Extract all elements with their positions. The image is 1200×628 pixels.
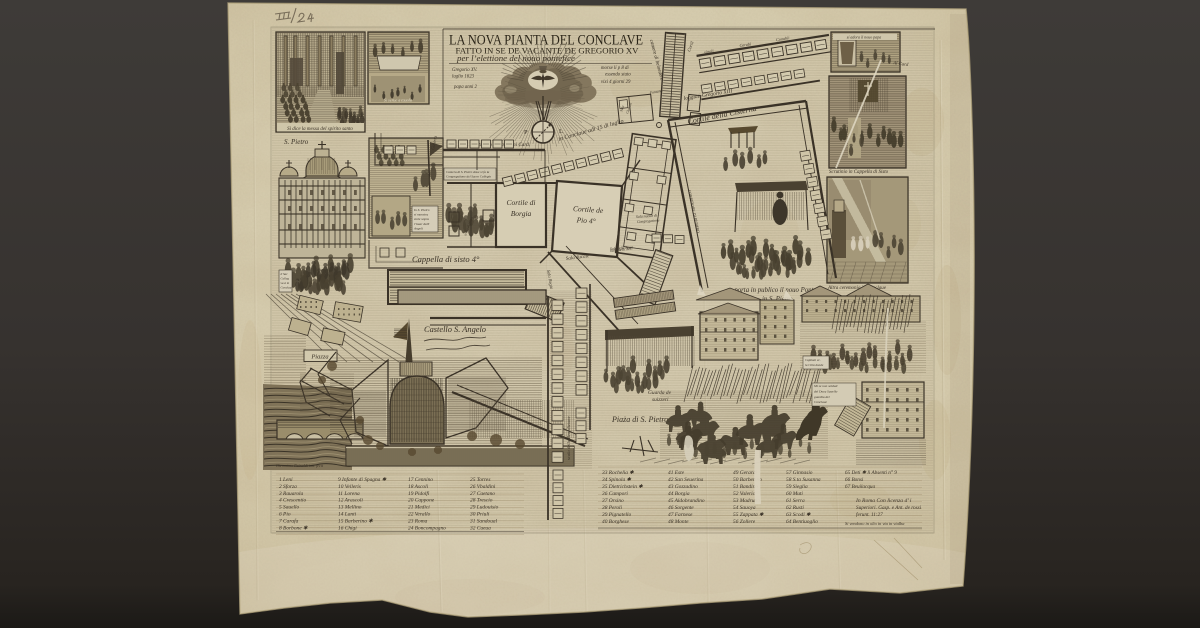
- svg-text:L: L: [559, 128, 563, 135]
- svg-text:9 Infante di Spagna ✱: 9 Infante di Spagna ✱: [338, 476, 387, 483]
- svg-text:37 Orsino: 37 Orsino: [601, 498, 624, 504]
- svg-text:46 Sorgente: 46 Sorgente: [668, 505, 694, 511]
- svg-text:Conclau: Conclau: [281, 286, 292, 290]
- svg-text:64 Bentiuoglio: 64 Bentiuoglio: [786, 519, 818, 525]
- svg-text:63 Scodi ✱: 63 Scodi ✱: [786, 512, 811, 518]
- svg-text:47 Farnese: 47 Farnese: [668, 512, 693, 518]
- svg-text:Pio 4°: Pio 4°: [575, 215, 596, 225]
- svg-text:28 Trescio: 28 Trescio: [470, 498, 493, 504]
- svg-text:Gieronimo Rainaldi inu. fecit: Gieronimo Rainaldi inu. fecit: [276, 463, 324, 468]
- svg-text:Si dice la messa del spirito s: Si dice la messa del spirito santo: [287, 127, 353, 132]
- svg-text:11 Lorena: 11 Lorena: [338, 491, 360, 497]
- svg-text:16 Chigi: 16 Chigi: [338, 525, 357, 531]
- svg-text:23 Roma: 23 Roma: [408, 518, 428, 524]
- svg-text:45 Aldobrandino: 45 Aldobrandino: [668, 498, 705, 504]
- svg-text:60 Muti: 60 Muti: [786, 491, 803, 497]
- svg-text:67 Beuilacqua: 67 Beuilacqua: [845, 484, 876, 490]
- svg-text:vixi 4 giorni 29: vixi 4 giorni 29: [601, 80, 631, 85]
- svg-text:22 Verallo: 22 Verallo: [408, 512, 431, 518]
- svg-text:Piazza: Piazza: [310, 354, 328, 361]
- svg-text:essendo stato: essendo stato: [605, 73, 631, 78]
- svg-text:41 Este: 41 Este: [668, 470, 685, 476]
- svg-text:Conclaue: Conclaue: [814, 400, 827, 404]
- svg-text:38 Peroli: 38 Peroli: [601, 505, 623, 511]
- svg-text:12 Arascoli: 12 Arascoli: [338, 498, 363, 504]
- svg-text:33 Rochelia ✱: 33 Rochelia ✱: [601, 470, 634, 476]
- svg-text:57 Ginnasio: 57 Ginnasio: [786, 470, 813, 476]
- svg-text:27 Caetano: 27 Caetano: [470, 491, 495, 497]
- svg-text:36 Campori: 36 Campori: [601, 491, 628, 497]
- svg-text:55 Zappata ✱: 55 Zappata ✱: [733, 512, 764, 518]
- svg-text:papa anni 2: papa anni 2: [453, 85, 478, 90]
- svg-text:3 Rauarola: 3 Rauarola: [278, 491, 304, 497]
- svg-text:61 Serra: 61 Serra: [786, 498, 805, 504]
- svg-text:guardia del: guardia del: [814, 395, 830, 399]
- svg-text:si monstra: si monstra: [414, 213, 429, 217]
- svg-text:del Duca Sauello: del Duca Sauello: [814, 389, 838, 393]
- svg-text:i’baar delli: i’baar delli: [414, 222, 429, 226]
- svg-text:Gregorio XV.: Gregorio XV.: [452, 68, 478, 73]
- svg-text:Congregatione del Sacro Colleg: Congregatione del Sacro Collegio: [446, 175, 491, 179]
- svg-text:In S. Pietro: In S. Pietro: [413, 208, 430, 212]
- svg-text:Cappella di sisto 4°: Cappella di sisto 4°: [412, 254, 480, 264]
- svg-text:8 Borbone ✱: 8 Borbone ✱: [279, 525, 308, 531]
- svg-text:30 Priuli: 30 Priuli: [469, 512, 490, 518]
- svg-text:32 Cueua: 32 Cueua: [469, 525, 491, 531]
- svg-text:Capitani ec.: Capitani ec.: [805, 358, 821, 362]
- svg-text:59 Sieglia: 59 Sieglia: [786, 484, 808, 490]
- svg-text:suizzeri: suizzeri: [652, 397, 669, 403]
- svg-text:5 Sauello: 5 Sauello: [279, 505, 300, 511]
- svg-text:va à in: va à in: [281, 281, 290, 285]
- svg-text:P: P: [524, 129, 528, 136]
- svg-text:ferunt. 11:27: ferunt. 11:27: [856, 511, 883, 518]
- svg-text:morse li p 8 di: morse li p 8 di: [601, 66, 629, 71]
- svg-text:29 Ludouisio: 29 Ludouisio: [470, 505, 499, 511]
- svg-text:34 Spinola ✱: 34 Spinola ✱: [601, 477, 632, 483]
- svg-text:6 Pio: 6 Pio: [279, 512, 291, 518]
- svg-text:1 Leni: 1 Leni: [279, 477, 293, 483]
- svg-text:10 Velleris: 10 Velleris: [338, 484, 361, 490]
- svg-text:il Sac: il Sac: [281, 272, 289, 276]
- svg-text:18 Ascoli: 18 Ascoli: [408, 484, 429, 490]
- svg-text:21 Medici: 21 Medici: [408, 505, 430, 511]
- svg-text:Scrutinio in Cappella di Sisto: Scrutinio in Cappella di Sisto: [829, 170, 889, 175]
- svg-text:54 Sauoya: 54 Sauoya: [733, 505, 756, 511]
- svg-text:Si serue a tauola: Si serue a tauola: [384, 98, 412, 103]
- svg-text:35 Dietrichstein ✱: 35 Dietrichstein ✱: [601, 484, 643, 490]
- svg-text:14 Lanti: 14 Lanti: [338, 512, 357, 518]
- svg-text:Castello S. Angelo: Castello S. Angelo: [424, 325, 486, 334]
- svg-text:66 Bonsi: 66 Bonsi: [845, 477, 864, 483]
- svg-text:20 Cappone: 20 Cappone: [408, 498, 435, 504]
- svg-text:52 Valerio: 52 Valerio: [733, 491, 756, 497]
- svg-text:4 Crescentio: 4 Crescentio: [279, 498, 307, 504]
- svg-text:la Città donde: la Città donde: [805, 363, 824, 367]
- svg-text:Camera di S. Pietro doue si fa: Camera di S. Pietro doue si fa la: [446, 170, 490, 174]
- svg-text:13 Mellino: 13 Mellino: [338, 505, 362, 511]
- svg-text:43 Gozzadino: 43 Gozzadino: [668, 484, 698, 490]
- svg-text:Superiori. Gasp. e Ant. de ros: Superiori. Gasp. e Ant. de rossi: [856, 505, 922, 511]
- svg-text:62 Rusti: 62 Rusti: [786, 505, 804, 511]
- svg-text:26 Vbaldini: 26 Vbaldini: [470, 484, 496, 490]
- svg-text:2 Sforza: 2 Sforza: [279, 483, 297, 490]
- svg-text:40 Borghese: 40 Borghese: [602, 519, 630, 525]
- svg-text:Cortile di: Cortile di: [507, 198, 536, 207]
- svg-text:S. Pietro: S. Pietro: [284, 138, 309, 146]
- svg-text:scala della Benedizione: scala della Benedizione: [566, 416, 571, 460]
- svg-text:Borgia: Borgia: [511, 209, 532, 218]
- svg-text:Guarda de: Guarda de: [648, 390, 672, 396]
- svg-text:Mi se non soldati: Mi se non soldati: [813, 384, 838, 388]
- svg-text:39 Pignatello: 39 Pignatello: [601, 512, 632, 518]
- svg-text:si adora il nouo papa: si adora il nouo papa: [847, 35, 881, 40]
- svg-text:65 Deti ✱ li Absenti n° 9: 65 Deti ✱ li Absenti n° 9: [845, 469, 897, 476]
- svg-text:17 Cennino: 17 Cennino: [408, 477, 433, 483]
- svg-text:Si vendono in olio in via in v: Si vendono in olio in via in vialba: [845, 521, 905, 526]
- svg-text:15 Barberino ✱: 15 Barberino ✱: [338, 518, 373, 524]
- svg-text:56 Zollere: 56 Zollere: [733, 519, 756, 525]
- svg-text:25 Torres: 25 Torres: [470, 477, 490, 483]
- svg-text:Colleg: Colleg: [281, 277, 290, 281]
- svg-text:31 Sandoual: 31 Sandoual: [469, 518, 498, 524]
- svg-text:stole sopra: stole sopra: [414, 217, 429, 221]
- svg-text:48 Monte: 48 Monte: [668, 519, 689, 525]
- svg-text:42 San Seuerina: 42 San Seuerina: [668, 477, 704, 483]
- svg-text:7 Carafa: 7 Carafa: [279, 517, 299, 524]
- svg-text:24 Boncompagno: 24 Boncompagno: [408, 525, 446, 531]
- svg-text:49 Gerardi: 49 Gerardi: [733, 470, 757, 476]
- svg-text:44 Borgia: 44 Borgia: [668, 491, 690, 497]
- svg-text:luglio 1623: luglio 1623: [452, 75, 475, 80]
- svg-text:In Roma Con licenza d’ i: In Roma Con licenza d’ i: [855, 498, 912, 504]
- svg-text:19 Pidolfi: 19 Pidolfi: [408, 490, 430, 497]
- svg-text:58 S.ta Susanna: 58 S.ta Susanna: [786, 477, 821, 483]
- svg-text:Angeli: Angeli: [413, 226, 423, 230]
